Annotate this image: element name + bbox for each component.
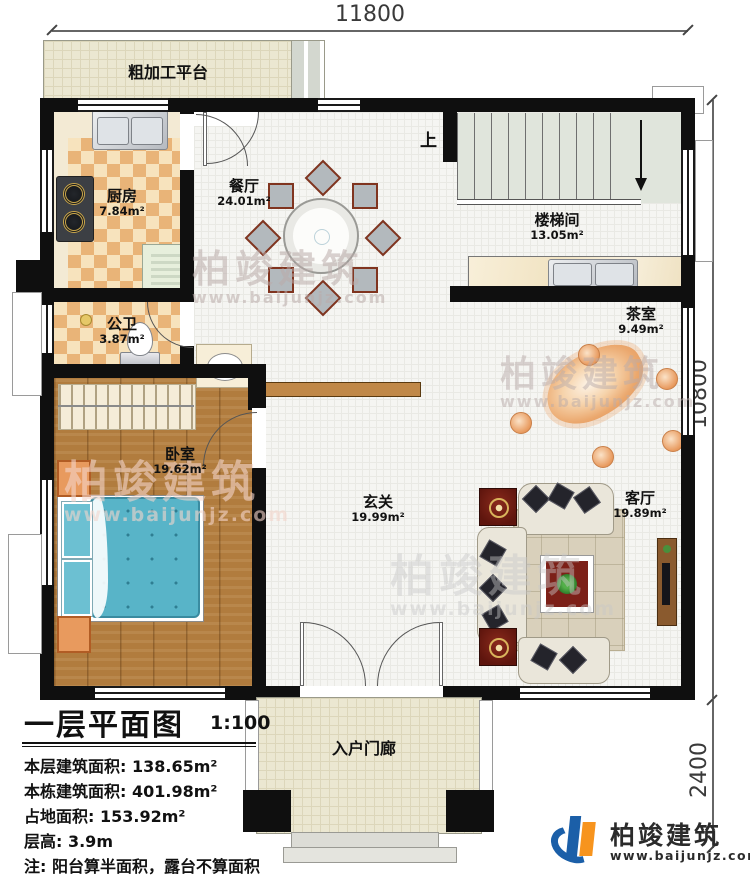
dining-table-center: [314, 229, 330, 245]
living-name: 客厅: [585, 490, 695, 507]
dining-name: 餐厅: [184, 178, 304, 195]
watermark-brand: 柏竣建筑: [500, 356, 695, 394]
window-right-stair: [681, 150, 695, 255]
porch-step: [283, 847, 457, 863]
info-line-building-area: 本栋建筑面积: 401.98m²: [24, 778, 217, 802]
plan-scale: 1:100: [210, 712, 270, 734]
kitchen-sink: [92, 110, 168, 150]
room-label-stairwell: 楼梯间 13.05m²: [497, 212, 617, 242]
bathroom-area: 3.87m²: [62, 333, 182, 346]
window-left-bedroom: [40, 480, 54, 585]
window-top-dining: [318, 98, 360, 112]
bathroom-name: 公卫: [62, 316, 182, 333]
closet-rod: [58, 405, 194, 407]
side-table: [479, 628, 517, 666]
tearoom-name: 茶室: [581, 306, 701, 323]
kitchen-name: 厨房: [62, 188, 182, 205]
window-bottom-living: [520, 686, 650, 700]
tv-cabinet: [657, 538, 677, 626]
brand-url: www.baijunjz.com: [610, 848, 750, 863]
info-line-height: 层高: 3.9m: [24, 828, 113, 852]
stairwell-area: 13.05m²: [497, 229, 617, 242]
wall-bedroom-top: [40, 364, 266, 378]
door-leaf: [300, 622, 304, 686]
dining-area: 24.01m²: [184, 195, 304, 208]
brand-logo-icon: [548, 810, 606, 866]
watermark: 柏竣建筑 www.baijunjz.com: [390, 554, 616, 620]
info-line-footprint: 占地面积: 153.92m²: [24, 803, 185, 827]
stairs-arrow-head: [635, 178, 647, 191]
side-table: [479, 488, 517, 526]
room-label-foyer: 玄关 19.99m²: [318, 494, 438, 524]
dining-chair: [352, 183, 378, 209]
dimension-top-line: [52, 30, 688, 32]
room-label-porch: 入户门廊: [304, 740, 424, 758]
fridge-detail: [151, 251, 181, 285]
window-sill: [8, 534, 42, 654]
info-line-note: 注: 阳台算半面积，露台不算面积: [24, 853, 260, 877]
bedroom-area: 19.62m²: [120, 463, 240, 476]
kitchen-area: 7.84m²: [62, 205, 182, 218]
room-label-kitchen: 厨房 7.84m²: [62, 188, 182, 218]
closet: [58, 384, 196, 430]
dimension-top: 11800: [300, 2, 440, 27]
porch-rail: [479, 700, 493, 797]
porch-column: [243, 790, 291, 832]
brand-name: 柏竣建筑: [610, 816, 722, 852]
room-label-dining: 餐厅 24.01m²: [184, 178, 304, 208]
dimension-right-lower: 2400: [687, 720, 713, 820]
watermark-url: www.baijunjz.com: [192, 290, 387, 307]
stairwell-name: 楼梯间: [497, 212, 617, 229]
floor-plan: 11800 10800 2400 粗加工平台 上: [0, 0, 750, 880]
foyer-name: 玄关: [318, 494, 438, 511]
watermark-url: www.baijunjz.com: [390, 600, 616, 620]
partition-cabinet: [265, 382, 421, 397]
sink-basin: [595, 263, 634, 286]
watermark-brand: 柏竣建筑: [390, 554, 616, 600]
plan-title: 一层平面图: [24, 700, 184, 744]
room-label-bathroom: 公卫 3.87m²: [62, 316, 182, 346]
wall-bedroom-right: [252, 378, 266, 408]
room-label-living: 客厅 19.89m²: [585, 490, 695, 520]
window-top-kitchen: [78, 98, 168, 112]
plant-small: [663, 545, 671, 553]
platform-floor: 粗加工平台: [43, 40, 293, 100]
pillow: [62, 560, 92, 616]
watermark-url: www.baijunjz.com: [500, 394, 695, 411]
wall-stair-left: [443, 98, 457, 162]
window-bottom-bedroom: [95, 686, 225, 700]
bedroom-name: 卧室: [120, 446, 240, 463]
nightstand: [57, 616, 91, 653]
flue-box: [16, 260, 40, 292]
title-rule: [22, 742, 256, 747]
watermark: 柏竣建筑 www.baijunjz.com: [500, 356, 695, 411]
tv: [662, 563, 670, 605]
watermark-url: www.baijunjz.com: [64, 506, 290, 526]
stairs-arrow-line: [640, 120, 642, 180]
watermark-brand: 柏竣建筑: [192, 250, 387, 290]
porch-name: 入户门廊: [304, 740, 424, 758]
porch-column: [446, 790, 494, 832]
room-label-bedroom: 卧室 19.62m²: [120, 446, 240, 476]
foyer-area: 19.99m²: [318, 511, 438, 524]
info-line-floor-area: 本层建筑面积: 138.65m²: [24, 753, 217, 777]
platform-side-strip: [291, 40, 325, 100]
door-opening: [180, 114, 194, 170]
watermark: 柏竣建筑 www.baijunjz.com: [192, 250, 387, 307]
window-sill: [12, 292, 42, 396]
tea-stool: [510, 412, 532, 434]
sink-basin: [131, 117, 163, 145]
window-left-kitchen: [40, 150, 54, 232]
tearoom-area: 9.49m²: [581, 323, 701, 336]
wall-tearoom-top: [450, 286, 692, 302]
tea-stool: [592, 446, 614, 468]
stair-edge: [457, 199, 641, 205]
living-area: 19.89m²: [585, 507, 695, 520]
door-leaf: [439, 622, 443, 686]
sink-basin: [553, 263, 592, 286]
wall-kitchen-bath: [40, 288, 194, 302]
room-label-tearoom: 茶室 9.49m²: [581, 306, 701, 336]
window-left-bath: [40, 305, 54, 353]
room-label-platform: 粗加工平台: [44, 59, 292, 83]
stairs-up-label: 上: [420, 126, 437, 151]
window-sill: [695, 140, 713, 262]
counter-sink: [548, 259, 638, 289]
sink-basin: [97, 117, 129, 145]
